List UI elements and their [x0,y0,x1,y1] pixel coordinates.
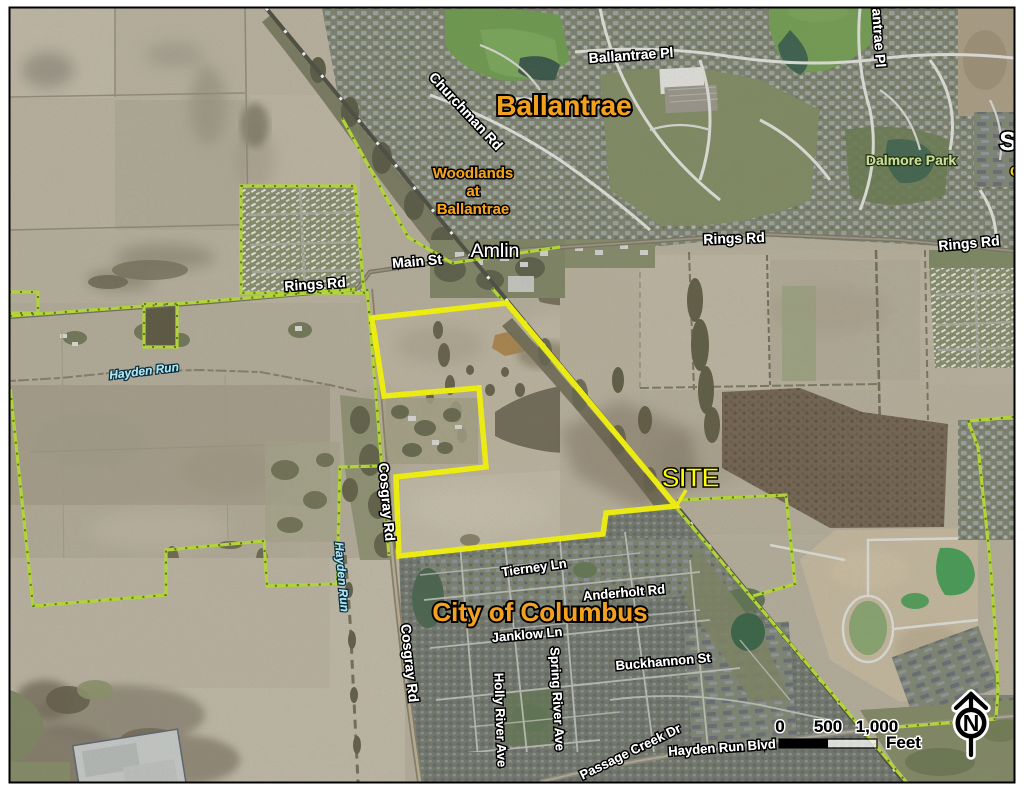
svg-text:Amlin: Amlin [471,240,520,262]
svg-text:0: 0 [775,717,784,736]
svg-text:Woodlands: Woodlands [433,165,514,182]
svg-text:at: at [466,183,479,200]
svg-text:City of Columbus: City of Columbus [432,597,647,627]
svg-text:SITE: SITE [661,462,719,493]
svg-text:N: N [963,710,980,736]
svg-text:Rings Rd: Rings Rd [703,229,765,247]
svg-text:Ballantrae: Ballantrae [496,90,631,121]
svg-text:Dalmore Park: Dalmore Park [866,152,956,168]
svg-text:Feet: Feet [886,733,921,752]
svg-text:Ballantrae: Ballantrae [437,201,510,218]
svg-text:500: 500 [814,717,842,736]
